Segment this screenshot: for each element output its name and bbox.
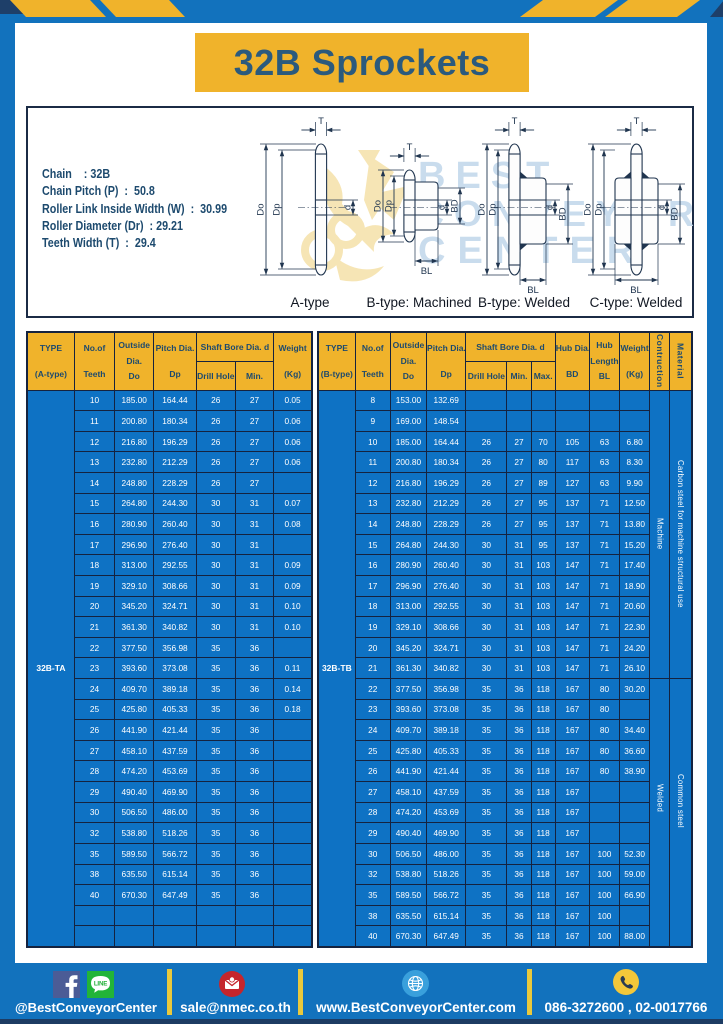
svg-text:C-type: Welded: C-type: Welded (590, 295, 683, 310)
svg-text:Dp: Dp (272, 203, 283, 215)
svg-text:Dp: Dp (488, 203, 499, 215)
svg-text:Dp: Dp (384, 200, 395, 212)
svg-text:d: d (657, 205, 668, 210)
svg-text:BD: BD (670, 207, 681, 220)
svg-text:T: T (407, 142, 413, 153)
svg-text:T: T (634, 116, 640, 127)
svg-text:Do: Do (583, 203, 594, 215)
svg-text:d: d (545, 205, 556, 210)
svg-text:T: T (318, 116, 324, 127)
svg-text:Do: Do (477, 203, 488, 215)
svg-text:Dp: Dp (594, 203, 605, 215)
svg-text:d: d (343, 205, 354, 210)
svg-text:BD: BD (450, 199, 461, 212)
svg-text:Do: Do (256, 203, 267, 215)
svg-text:B-type: Welded: B-type: Welded (478, 295, 570, 310)
svg-text:LINE: LINE (94, 981, 107, 988)
svg-text:Do: Do (373, 200, 384, 212)
svg-text:B-type: Machined: B-type: Machined (366, 295, 471, 310)
svg-text:T: T (512, 116, 518, 127)
svg-text:A-type: A-type (290, 295, 329, 310)
svg-text:BD: BD (558, 207, 569, 220)
svg-text:d: d (437, 205, 448, 210)
svg-text:BL: BL (421, 266, 433, 277)
